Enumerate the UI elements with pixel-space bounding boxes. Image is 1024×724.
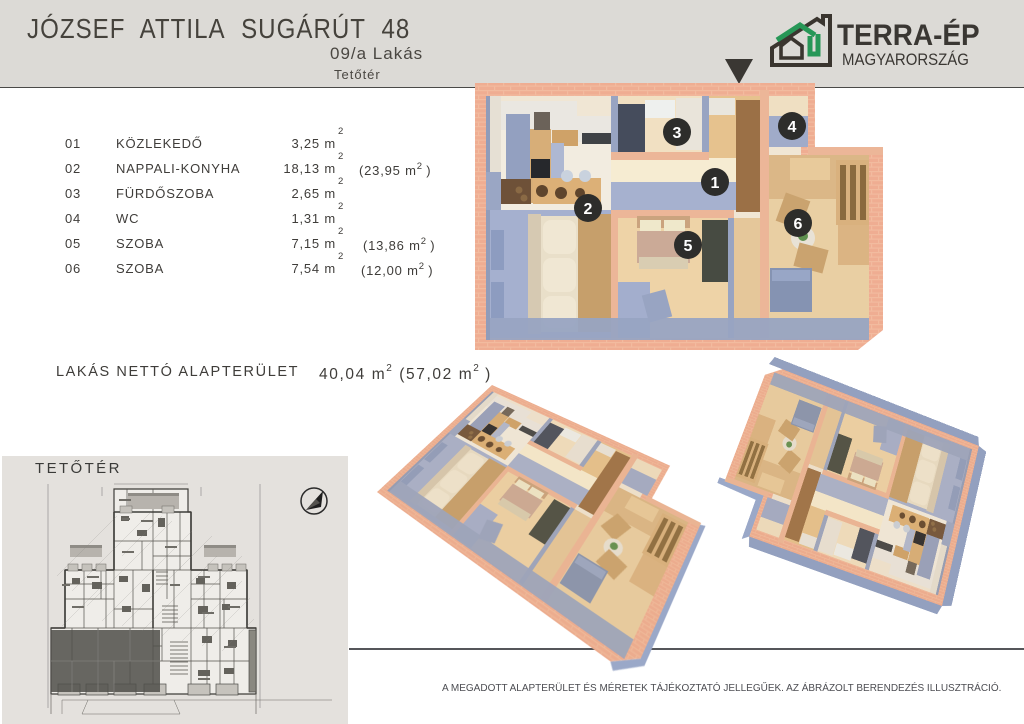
svg-text:3: 3 — [673, 125, 682, 142]
svg-text:2: 2 — [584, 201, 593, 218]
svg-text:4: 4 — [788, 119, 797, 136]
svg-text:5: 5 — [684, 238, 693, 255]
svg-text:1: 1 — [711, 175, 720, 192]
svg-text:6: 6 — [794, 216, 803, 233]
